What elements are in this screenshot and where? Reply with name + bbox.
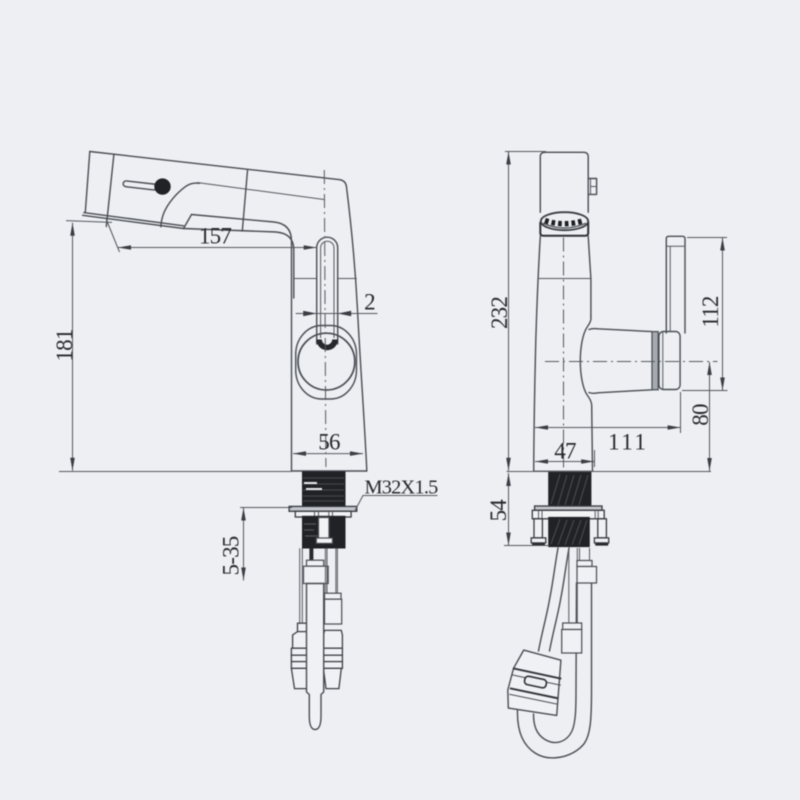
svg-text:80: 80 [688, 404, 713, 426]
svg-text:111: 111 [608, 430, 648, 455]
svg-text:47: 47 [554, 439, 576, 464]
svg-text:181: 181 [52, 329, 77, 361]
svg-text:157: 157 [199, 224, 231, 249]
svg-text:2: 2 [364, 290, 375, 315]
svg-text:54: 54 [486, 499, 511, 522]
svg-text:112: 112 [698, 296, 723, 328]
svg-text:232: 232 [487, 297, 512, 329]
svg-text:56: 56 [318, 430, 340, 455]
svg-text:5-35: 5-35 [219, 536, 244, 575]
